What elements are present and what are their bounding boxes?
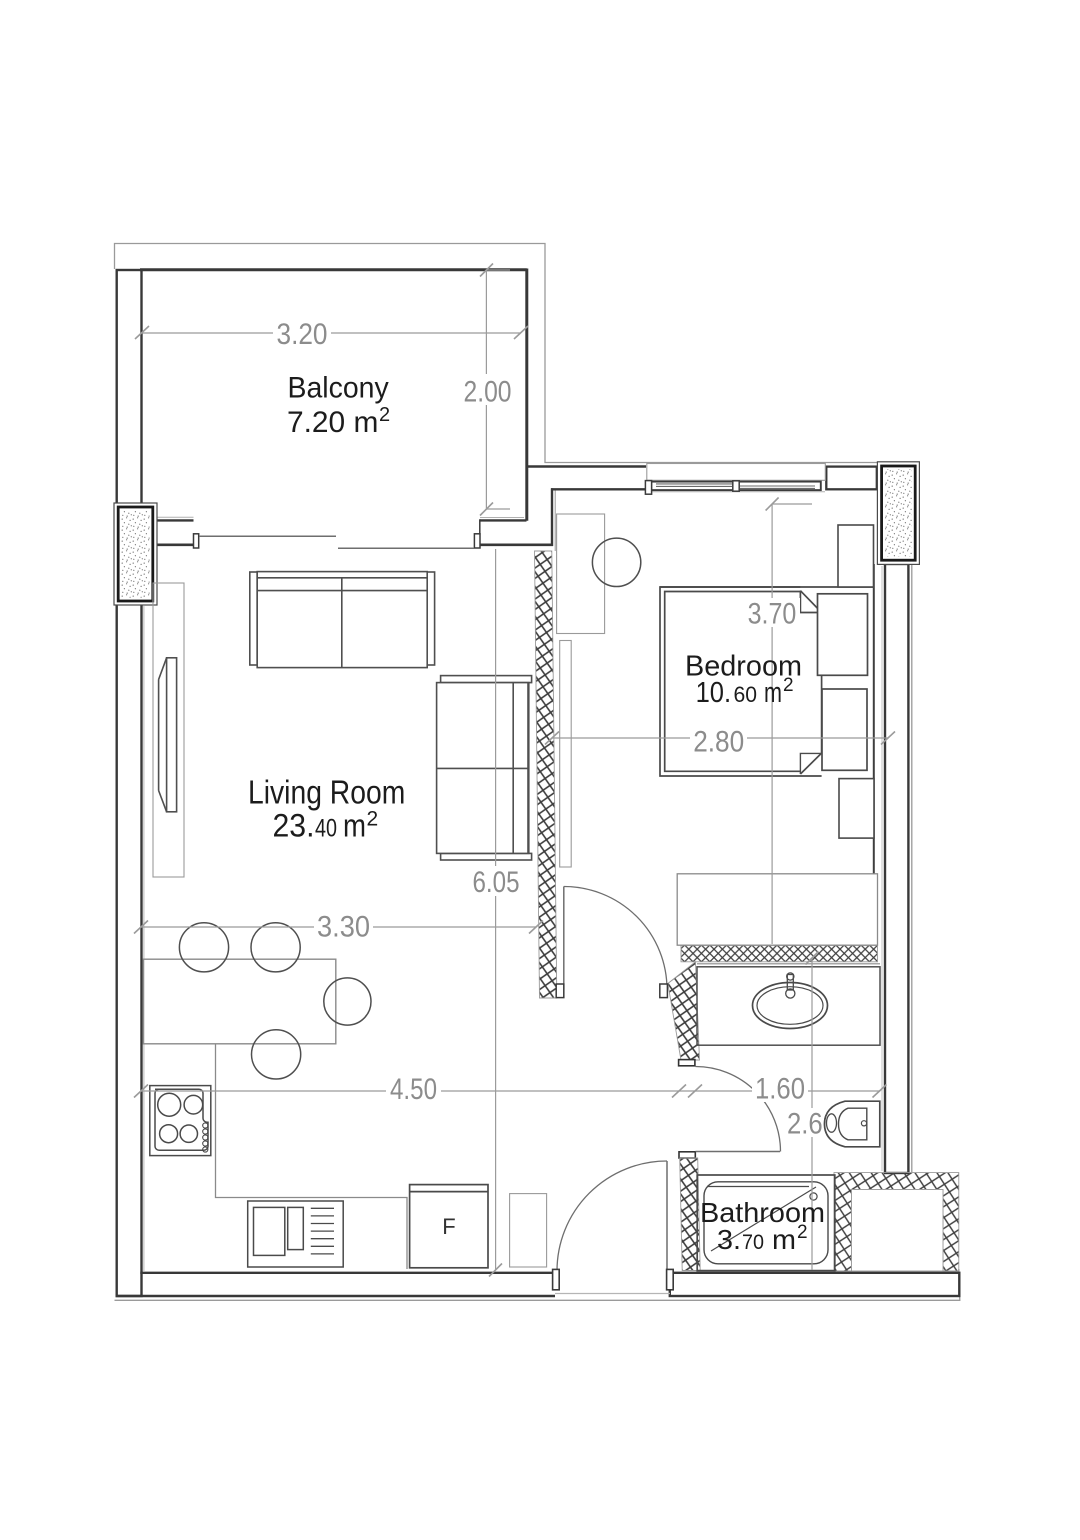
- svg-text:7.20 m: 7.20 m: [287, 406, 378, 439]
- svg-text:10.: 10.: [696, 677, 732, 709]
- svg-text:6.05: 6.05: [473, 866, 520, 899]
- svg-text:2: 2: [783, 675, 794, 696]
- svg-text:m: m: [343, 808, 366, 844]
- svg-text:3.: 3.: [717, 1224, 741, 1255]
- svg-text:70: 70: [742, 1231, 764, 1254]
- svg-text:m: m: [772, 1224, 796, 1255]
- svg-text:3.30: 3.30: [317, 911, 370, 944]
- svg-text:2: 2: [379, 404, 390, 426]
- svg-text:F: F: [442, 1214, 455, 1239]
- svg-text:2.00: 2.00: [464, 376, 512, 409]
- svg-text:3.70: 3.70: [748, 598, 797, 631]
- svg-text:m: m: [764, 677, 782, 709]
- svg-text:60: 60: [734, 682, 758, 707]
- svg-text:2: 2: [797, 1222, 808, 1243]
- svg-text:4.50: 4.50: [390, 1073, 437, 1106]
- svg-text:2: 2: [367, 808, 379, 831]
- svg-text:Balcony: Balcony: [288, 372, 389, 405]
- svg-text:Living Room: Living Room: [248, 773, 405, 810]
- svg-text:1.60: 1.60: [755, 1073, 805, 1106]
- svg-text:23.: 23.: [273, 808, 315, 844]
- svg-text:2.80: 2.80: [693, 726, 744, 759]
- svg-text:3.20: 3.20: [277, 318, 328, 351]
- svg-text:40: 40: [315, 815, 337, 843]
